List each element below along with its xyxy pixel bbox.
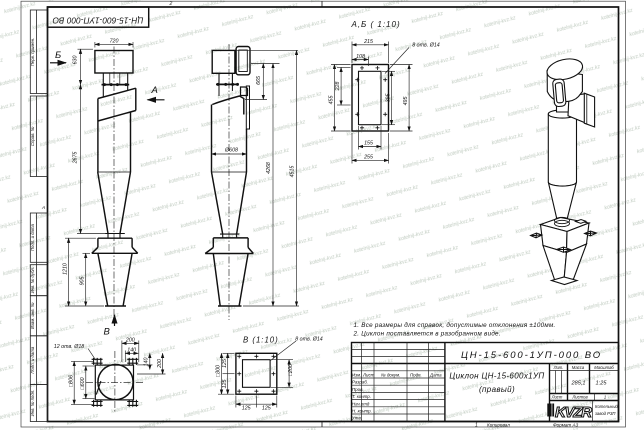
svg-text:228: 228 [335, 82, 341, 92]
svg-text:1: 1 [475, 423, 478, 429]
svg-text:Подп. и дата: Подп. и дата [30, 224, 35, 252]
svg-text:Копировал: Копировал [487, 422, 510, 427]
svg-text:125: 125 [242, 405, 251, 411]
svg-text:Циклон ЦН-15-600х1УП: Циклон ЦН-15-600х1УП [449, 372, 544, 381]
svg-text:Лист: Лист [551, 395, 563, 400]
svg-text:1210: 1210 [63, 263, 69, 275]
svg-text:Дата: Дата [429, 373, 442, 378]
svg-text:Инв. № дубл.: Инв. № дубл. [30, 267, 35, 293]
svg-text:Разраб.: Разраб. [352, 380, 368, 385]
svg-text:Т. контр.: Т. контр. [352, 394, 371, 399]
svg-text:4268: 4268 [266, 162, 272, 174]
svg-text:495: 495 [403, 97, 409, 106]
svg-text:Ø608: Ø608 [224, 148, 238, 154]
svg-text:№ докум.: № докум. [381, 373, 400, 378]
svg-text:395: 395 [385, 94, 391, 103]
svg-text:1:25: 1:25 [596, 381, 608, 387]
svg-text:2: 2 [169, 1, 173, 7]
svg-text:Формат А3: Формат А3 [553, 422, 579, 427]
svg-text:Справ. №: Справ. № [30, 126, 35, 146]
svg-text:(правый): (правый) [479, 385, 515, 394]
svg-text:8 отв. Ø14: 8 отв. Ø14 [412, 43, 440, 49]
svg-text:155: 155 [364, 141, 373, 147]
svg-text:А: А [41, 205, 45, 211]
svg-text:ЦН-15-600-1УП-000 ВО: ЦН-15-600-1УП-000 ВО [461, 350, 602, 361]
svg-text:Н. контр.: Н. контр. [352, 409, 372, 414]
svg-text:завод РЗП: завод РЗП [594, 411, 616, 416]
svg-text:Подп. и дата: Подп. и дата [30, 346, 35, 374]
svg-text:Масса: Масса [572, 365, 585, 370]
svg-text:2675: 2675 [73, 152, 79, 165]
svg-text:630: 630 [73, 56, 79, 65]
svg-text:1: 1 [604, 395, 606, 400]
svg-text:Перв. примен.: Перв. примен. [30, 38, 35, 67]
svg-text:108: 108 [356, 54, 365, 60]
svg-text:Нач.отд: Нач.отд [352, 401, 370, 406]
svg-text:455: 455 [328, 96, 334, 105]
svg-text:200: 200 [157, 359, 163, 369]
svg-text:Б: Б [55, 50, 61, 61]
svg-text:Котельный: Котельный [595, 404, 618, 409]
svg-text:Лит.: Лит. [553, 365, 564, 370]
svg-text:140: 140 [144, 358, 150, 367]
svg-text:А: А [151, 85, 158, 96]
svg-text:125: 125 [262, 405, 271, 411]
svg-text:Инв. № подл.: Инв. № подл. [30, 390, 35, 417]
svg-text:□806: □806 [69, 375, 75, 387]
svg-text:В: В [104, 327, 111, 338]
svg-text:1. Все размеры для справок, до: 1. Все размеры для справок, допустимые о… [354, 321, 556, 329]
svg-text:А,Б ( 1:10): А,Б ( 1:10) [351, 20, 401, 29]
svg-text:Лист: Лист [362, 373, 375, 378]
svg-text:200: 200 [125, 338, 135, 344]
svg-text:Изм.: Изм. [352, 373, 361, 378]
svg-text:Утв.: Утв. [352, 416, 362, 421]
svg-text:ЦН-15-600-1УП-000 ВО: ЦН-15-600-1УП-000 ВО [52, 15, 143, 24]
svg-text:125: 125 [222, 380, 228, 389]
svg-text:8 отв. Ø14: 8 отв. Ø14 [295, 336, 323, 342]
svg-text:□300: □300 [216, 365, 222, 377]
svg-text:285,1: 285,1 [571, 381, 586, 387]
svg-text:Масштаб: Масштаб [594, 365, 614, 370]
svg-text:□600: □600 [80, 377, 86, 389]
svg-text:KVZR: KVZR [555, 404, 592, 421]
svg-text:12 отв. Ø18: 12 отв. Ø18 [54, 344, 84, 350]
svg-text:720: 720 [110, 39, 119, 45]
svg-text:255: 255 [363, 155, 373, 161]
svg-text:Листов: Листов [571, 395, 588, 400]
svg-text:215: 215 [363, 39, 373, 45]
svg-text:Пров.: Пров. [352, 387, 364, 392]
svg-text:125: 125 [222, 359, 228, 368]
svg-text:Подп.: Подп. [410, 373, 422, 378]
svg-text:Взам. инв. №: Взам. инв. № [30, 302, 35, 329]
svg-text:140: 140 [127, 348, 136, 354]
svg-text:□200: □200 [288, 364, 294, 376]
svg-text:2. Циклон поставляется в разоб: 2. Циклон поставляется в разобранном вид… [353, 330, 501, 338]
svg-text:4515: 4515 [290, 166, 296, 178]
svg-text:665: 665 [256, 76, 262, 85]
svg-text:В (1:10): В (1:10) [243, 336, 279, 345]
svg-text:905: 905 [80, 277, 86, 286]
